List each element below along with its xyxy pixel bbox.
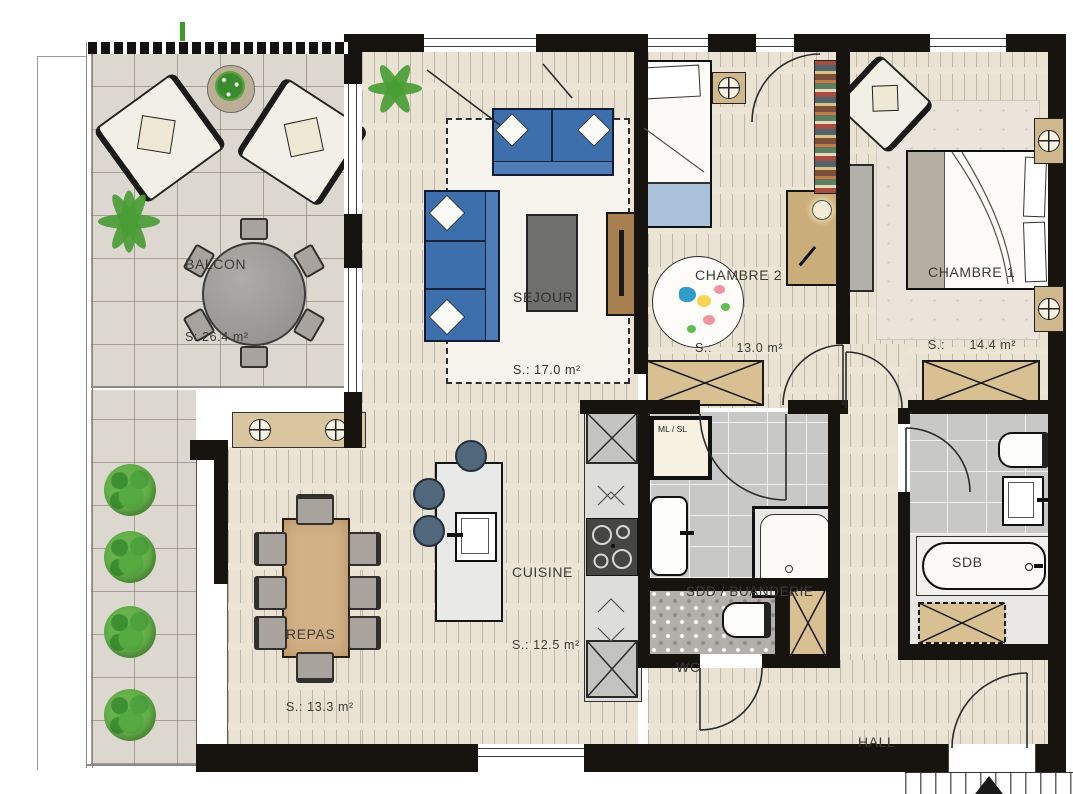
counter-cabinet (586, 640, 638, 698)
chambre2-chambre1-wall (836, 34, 850, 344)
room-name: SDD / BUANDERIE (686, 581, 814, 603)
counter-cabinet (586, 412, 638, 464)
label-balcon: BALCON S: 26.4 m² (185, 202, 249, 398)
cooktop (586, 518, 638, 576)
label-cuisine: CUISINE S.: 12.5 m² (512, 510, 580, 706)
label-wc: WC (676, 605, 701, 730)
ceiling-light-icon (249, 419, 271, 441)
bar-stool (413, 515, 445, 547)
entrance-opening (948, 744, 1036, 772)
window (930, 34, 1006, 52)
room-name: HALL (858, 731, 895, 753)
room-name: WC (676, 656, 701, 678)
desk (786, 190, 838, 286)
property-line-top (37, 56, 87, 57)
room-name: SDB (952, 551, 983, 573)
label-sdd: SDD / BUANDERIE (686, 530, 814, 654)
bar-stool (413, 478, 445, 510)
room-area: S.: 17.0 m² (513, 360, 581, 380)
bush (104, 606, 156, 658)
sofa-two-seat (492, 108, 614, 176)
facade-header (190, 440, 228, 460)
armchair-cushion (284, 117, 324, 157)
room-name: SEJOUR (513, 286, 581, 308)
room-area: S: 26.4 m² (185, 327, 249, 347)
stairs-direction-arrow (975, 776, 1003, 794)
tub-faucet (1025, 563, 1033, 571)
bed-pillow (1023, 222, 1047, 283)
ceiling-light-icon (718, 77, 740, 99)
plant-splat (98, 192, 160, 250)
sofa-three-seat (424, 190, 500, 342)
sdb-door-opening (898, 424, 910, 492)
window (478, 744, 584, 772)
sdb-bottom-wall (908, 644, 1066, 660)
plant-splat (368, 62, 422, 114)
washbasin (1002, 476, 1044, 526)
room-name: CUISINE (512, 561, 580, 583)
washer-label: ML / SL (658, 424, 687, 434)
room-area: S.: 12.5 m² (512, 635, 580, 655)
desk-lamp (812, 200, 832, 220)
bed-pillow (643, 65, 701, 100)
single-bed (638, 60, 712, 228)
armchair-cushion (137, 115, 176, 154)
room-area: S.: 14.4 m² (928, 335, 1016, 355)
nightstand (712, 72, 746, 104)
survey-marker (180, 22, 185, 41)
room-area: S.: 13.0 m² (695, 338, 783, 358)
bush (104, 689, 156, 741)
label-chambre1: CHAMBRE 1 S.: 14.4 m² (928, 210, 1016, 406)
room-name: CHAMBRE 1 (928, 261, 1016, 283)
ceiling-light-icon (1038, 298, 1060, 320)
room-name: BALCON (185, 253, 249, 275)
dining-chair (254, 532, 287, 566)
armchair-cushion (872, 85, 899, 112)
dining-chair (254, 616, 287, 650)
sdd-corridor-wall (828, 408, 840, 660)
bed-pillow (1023, 157, 1047, 218)
label-sdb: SDB (952, 500, 983, 625)
balcony-bottom-edge (86, 764, 196, 766)
dining-chair (348, 532, 381, 566)
ceiling-light-icon (1038, 130, 1060, 152)
bathtub (916, 536, 1052, 596)
hall-floor (648, 660, 1048, 744)
room-area: S.: 13.3 m² (286, 697, 354, 717)
facade-mullion (214, 458, 228, 584)
balcony-door-window (344, 84, 362, 214)
window (756, 34, 794, 52)
kitchen-island (435, 462, 503, 622)
property-line (37, 56, 38, 770)
faucet (447, 533, 463, 537)
window (648, 34, 708, 52)
washer-dryer: ML / SL (650, 416, 712, 480)
floor-plan: ML / SL (0, 0, 1073, 794)
dining-chair (296, 494, 334, 525)
toilet (998, 432, 1049, 468)
balcony-railing (88, 42, 352, 54)
bar-stool (455, 440, 487, 472)
nightstand (1034, 286, 1064, 332)
room-name: CHAMBRE 2 (695, 264, 783, 286)
potted-plant (215, 71, 245, 101)
laundry-sink (650, 496, 688, 576)
window (424, 34, 536, 52)
cuisine-sdd-wall (638, 408, 650, 668)
label-chambre2: CHAMBRE 2 S.: 13.0 m² (695, 213, 783, 409)
sejour-chambre2-wall (634, 34, 648, 374)
bush (104, 464, 156, 516)
wc-door-opening (700, 654, 762, 668)
bush (104, 531, 156, 583)
nightstand (1034, 118, 1064, 164)
balcony-door-window (344, 268, 362, 392)
room-name: REPAS (286, 623, 354, 645)
label-repas: REPAS S.: 13.3 m² (286, 572, 354, 768)
dining-chair (254, 576, 287, 610)
label-sejour: SEJOUR S.: 17.0 m² (513, 235, 581, 431)
label-hall: HALL (858, 680, 895, 794)
pen (799, 246, 816, 266)
island-sink (455, 512, 497, 562)
balcony-left-rail (86, 42, 93, 768)
